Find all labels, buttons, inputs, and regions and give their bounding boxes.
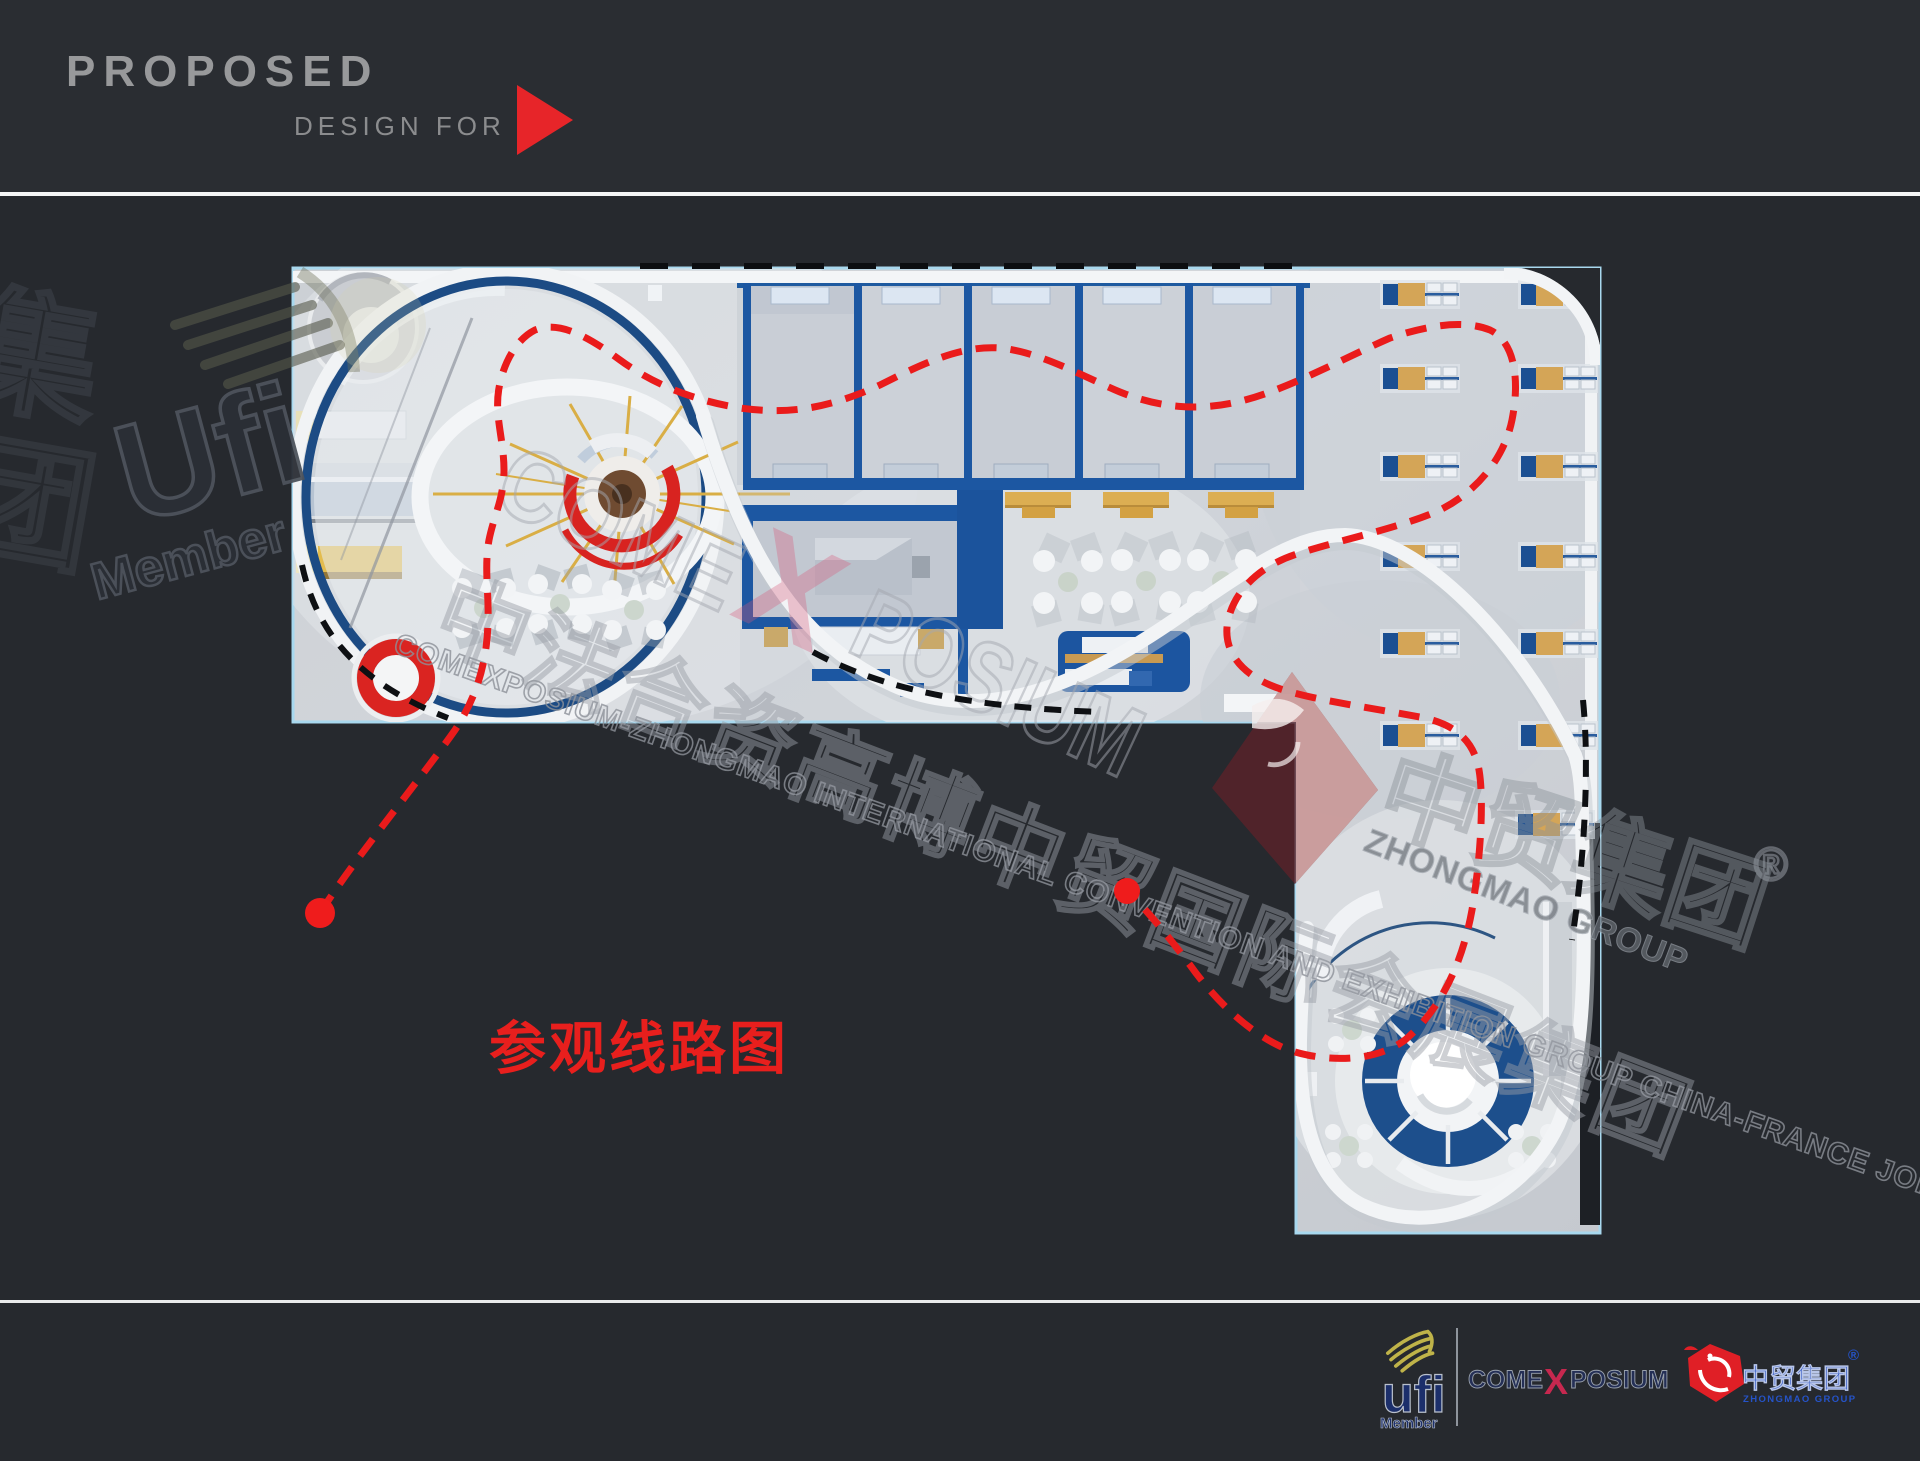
svg-text:Member: Member — [1380, 1415, 1438, 1432]
svg-text:COME: COME — [1468, 1366, 1543, 1394]
svg-text:中贸集团: 中贸集团 — [1742, 1363, 1850, 1394]
svg-text:X: X — [1544, 1361, 1568, 1402]
svg-text:ZHONGMAO GROUP: ZHONGMAO GROUP — [1743, 1394, 1857, 1405]
svg-text:®: ® — [1754, 838, 1788, 890]
svg-text:集: 集 — [0, 272, 112, 444]
svg-text:®: ® — [1848, 1347, 1859, 1364]
svg-text:POSIUM: POSIUM — [1570, 1366, 1669, 1394]
